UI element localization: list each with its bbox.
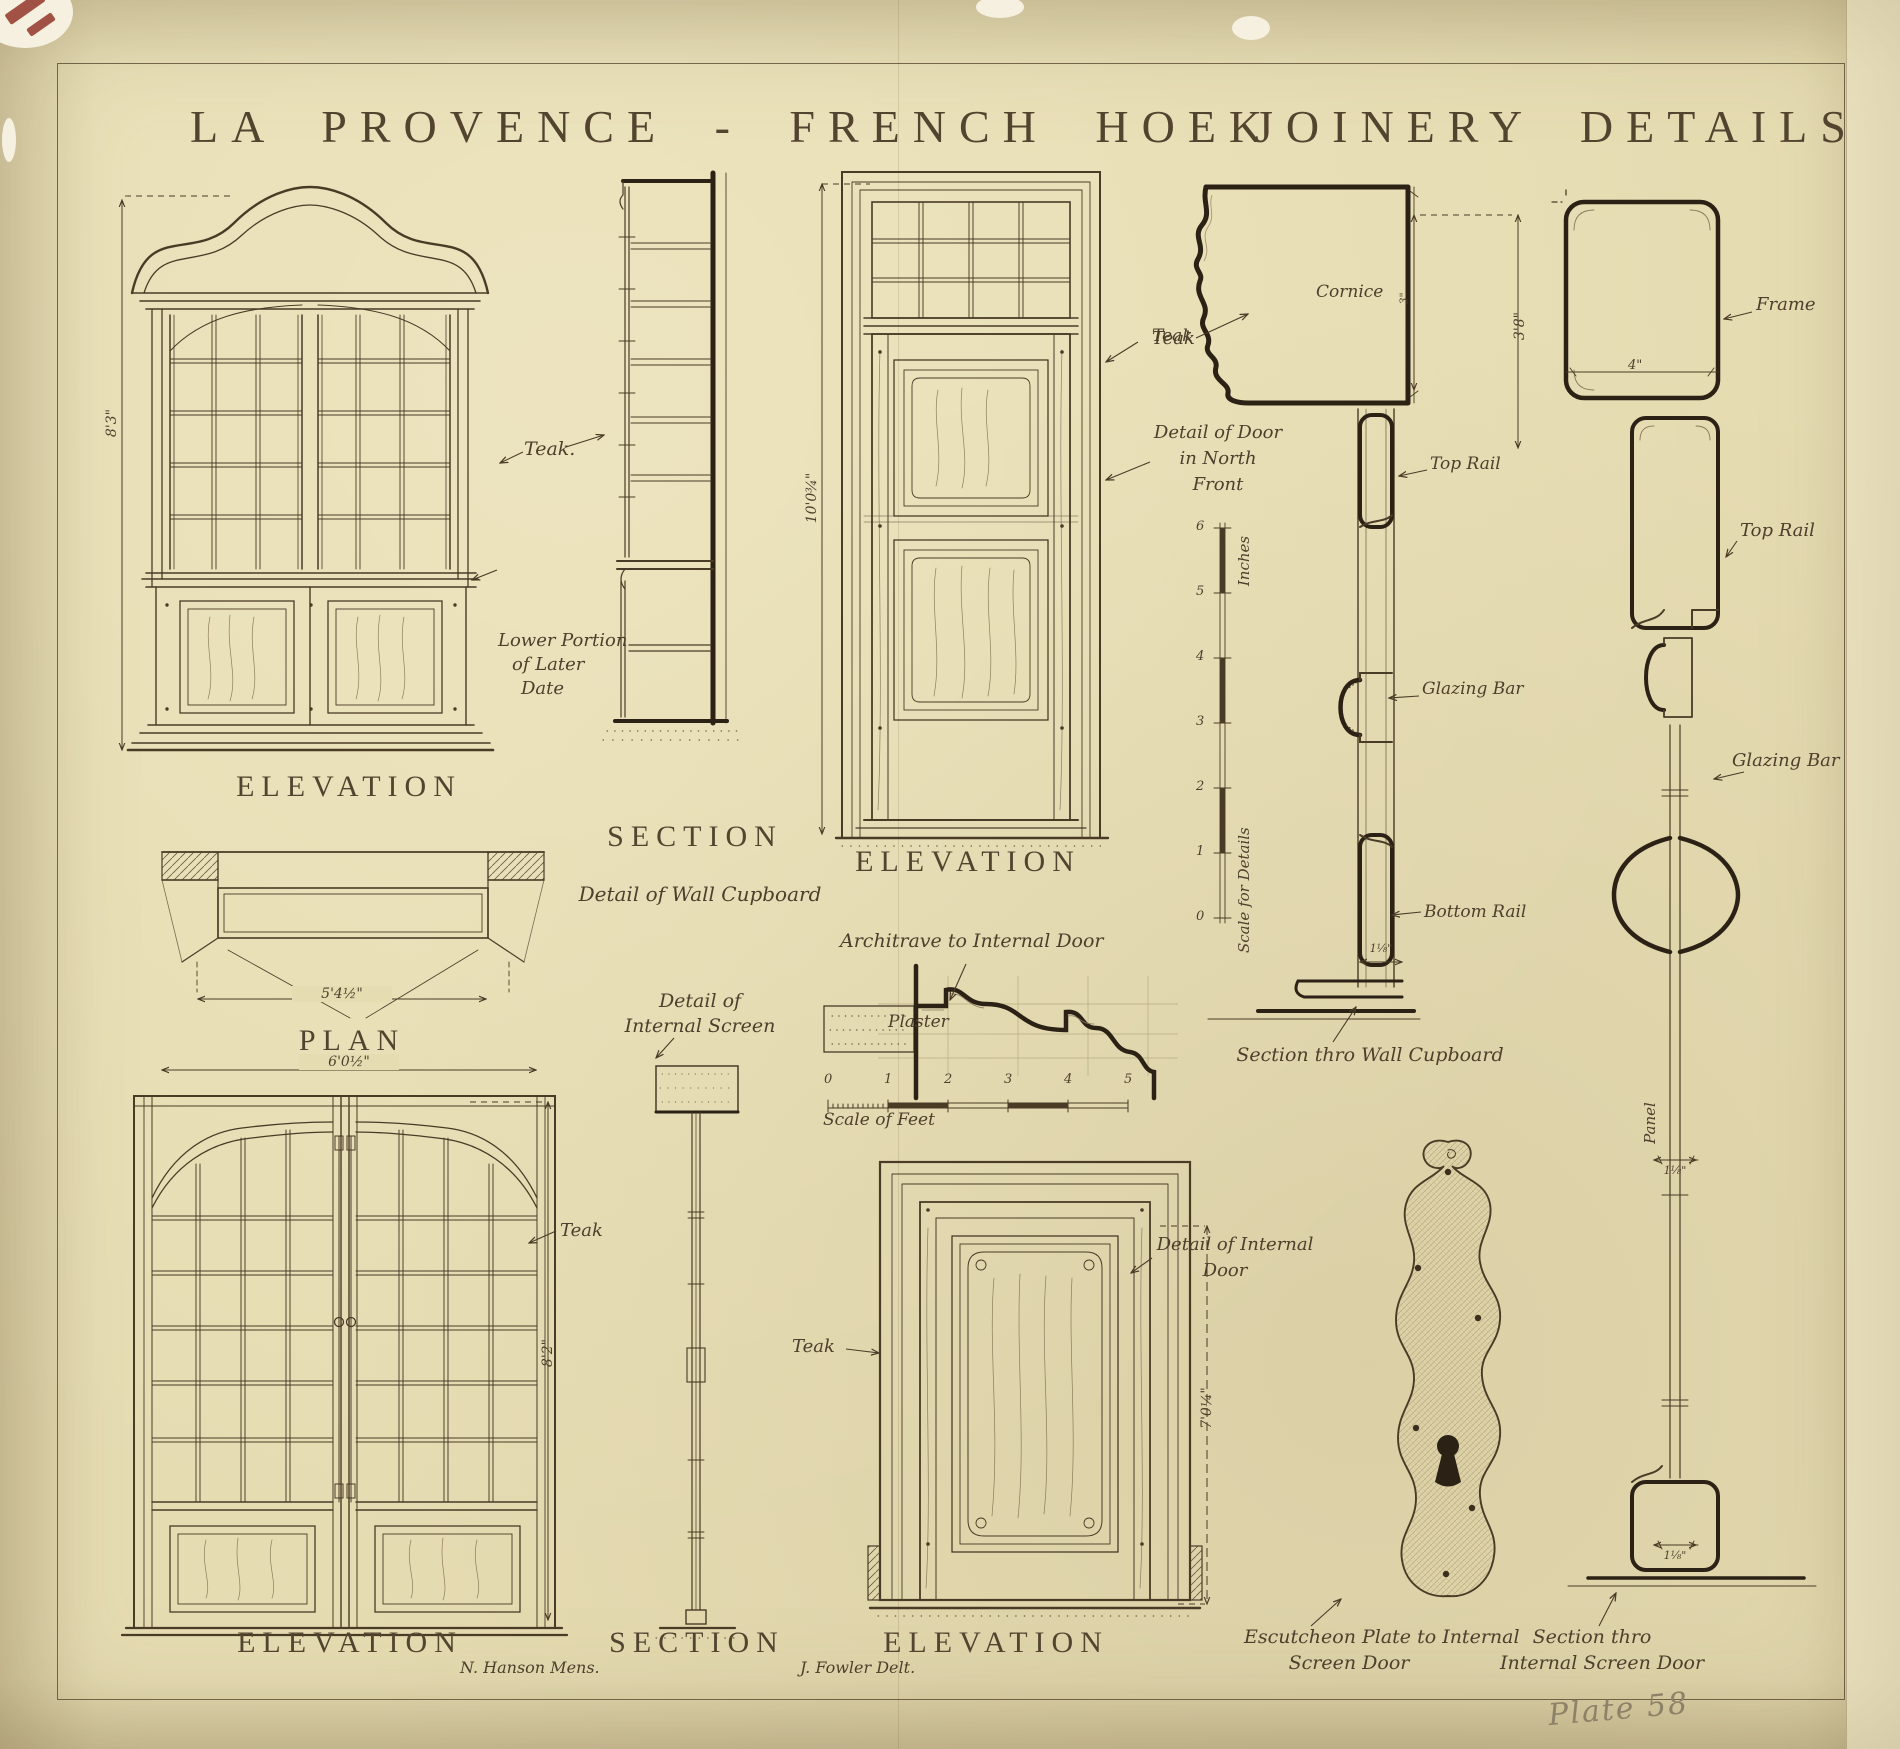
screen-teak-label: Teak: [560, 1220, 603, 1241]
frame-width-dimension: 4": [1628, 358, 1642, 373]
feet-tick-2: 2: [944, 1072, 952, 1087]
inch-tick-5: 5: [1196, 584, 1204, 599]
panel-dimension-bottom: 1⅛": [1650, 1549, 1700, 1562]
north-door-note-line3: Front: [1128, 474, 1308, 495]
internal-door-note-line1: Detail of Internal: [1140, 1234, 1330, 1255]
inch-tick-4: 4: [1196, 649, 1204, 664]
cornice-dimension: 3": [1398, 284, 1411, 314]
drawn-by-signature: J. Fowler Delt.: [800, 1658, 915, 1677]
north-door-note-line1: Detail of Door: [1128, 422, 1308, 443]
north-door-height-dimension: 10'0¾": [804, 453, 820, 543]
internal-door-elevation-caption: ELEVATION: [871, 1626, 1121, 1660]
architrave-title: Architrave to Internal Door: [840, 930, 1100, 952]
section-thro-wall-cupboard-caption: Section thro Wall Cupboard: [1230, 1044, 1510, 1066]
feet-tick-4: 4: [1064, 1072, 1072, 1087]
cupboard-plan-caption: PLAN: [227, 1024, 477, 1058]
escutcheon-caption-line2: Screen Door: [1244, 1652, 1454, 1674]
north-door-elevation-caption: ELEVATION: [843, 845, 1093, 879]
scale-for-details-label: Scale for Details: [1235, 841, 1253, 953]
sill-dimension: 1⅛": [1356, 942, 1406, 955]
frame-label: Frame: [1756, 294, 1816, 315]
screen-width-dimension: 6'0½": [299, 1054, 399, 1070]
cornice-label: Cornice: [1316, 282, 1383, 302]
glazing-bar-label: Glazing Bar: [1422, 679, 1524, 699]
feet-tick-1: 1: [884, 1072, 892, 1087]
cupboard-teak-label: Teak.: [524, 438, 575, 460]
screen-detail-note-line2: Internal Screen: [600, 1015, 800, 1037]
section-height-dimension: 3'8": [1512, 298, 1528, 354]
inch-tick-2: 2: [1196, 779, 1204, 794]
bottom-rail-label: Bottom Rail: [1424, 902, 1526, 922]
north-door-note-line2: in North: [1128, 448, 1308, 469]
inches-scale-title: Inches: [1235, 530, 1253, 592]
cupboard-later-note-line1: Lower Portion: [498, 630, 627, 651]
screen-detail-note-line1: Detail of: [600, 990, 800, 1012]
screen-top-rail-label: Top Rail: [1740, 520, 1815, 541]
panel-label: Panel: [1641, 1086, 1659, 1160]
feet-tick-3: 3: [1004, 1072, 1012, 1087]
section-teak-label: Teak: [1152, 326, 1193, 346]
screen-height-dimension: 8'2": [540, 1318, 556, 1388]
cupboard-elevation-caption: ELEVATION: [224, 770, 474, 804]
internal-door-teak-label: Teak: [792, 1336, 835, 1357]
screen-section-caption-line2: Internal Screen Door: [1492, 1652, 1712, 1674]
cupboard-height-dimension: 8'3": [104, 383, 120, 463]
feet-tick-5: 5: [1124, 1072, 1132, 1087]
screen-glazing-bar-label: Glazing Bar: [1732, 750, 1840, 771]
inch-tick-3: 3: [1196, 714, 1204, 729]
plan-width-dimension: 5'4½": [292, 986, 392, 1002]
measured-by-signature: N. Hanson Mens.: [460, 1658, 600, 1677]
feet-tick-0: 0: [824, 1072, 832, 1087]
internal-door-note-line2: Door: [1140, 1260, 1310, 1281]
inch-tick-0: 0: [1196, 909, 1204, 924]
screen-section-caption: SECTION: [572, 1626, 822, 1660]
cupboard-section-subcaption: Detail of Wall Cupboard: [560, 882, 840, 906]
inch-tick-1: 1: [1196, 844, 1204, 859]
screen-section-caption-line1: Section thro: [1502, 1626, 1682, 1648]
internal-door-height-dimension: 7'0¼": [1199, 1373, 1215, 1443]
panel-dimension-top: 1⅛": [1650, 1164, 1700, 1177]
cupboard-later-note-line2: of Later: [512, 654, 584, 675]
cupboard-section-caption: SECTION: [570, 820, 820, 854]
top-rail-label: Top Rail: [1430, 454, 1501, 474]
plaster-label: Plaster: [888, 1012, 949, 1032]
inch-tick-6: 6: [1196, 519, 1204, 534]
joinery-details-plate: LA PROVENCE - FRENCH HOEK JOINERY DETAIL…: [0, 0, 1900, 1749]
cupboard-later-note-line3: Date: [521, 678, 564, 699]
scale-of-feet-label: Scale of Feet: [823, 1110, 935, 1130]
screen-elevation-caption: ELEVATION: [225, 1626, 475, 1660]
escutcheon-caption-line1: Escutcheon Plate to Internal: [1244, 1626, 1504, 1648]
